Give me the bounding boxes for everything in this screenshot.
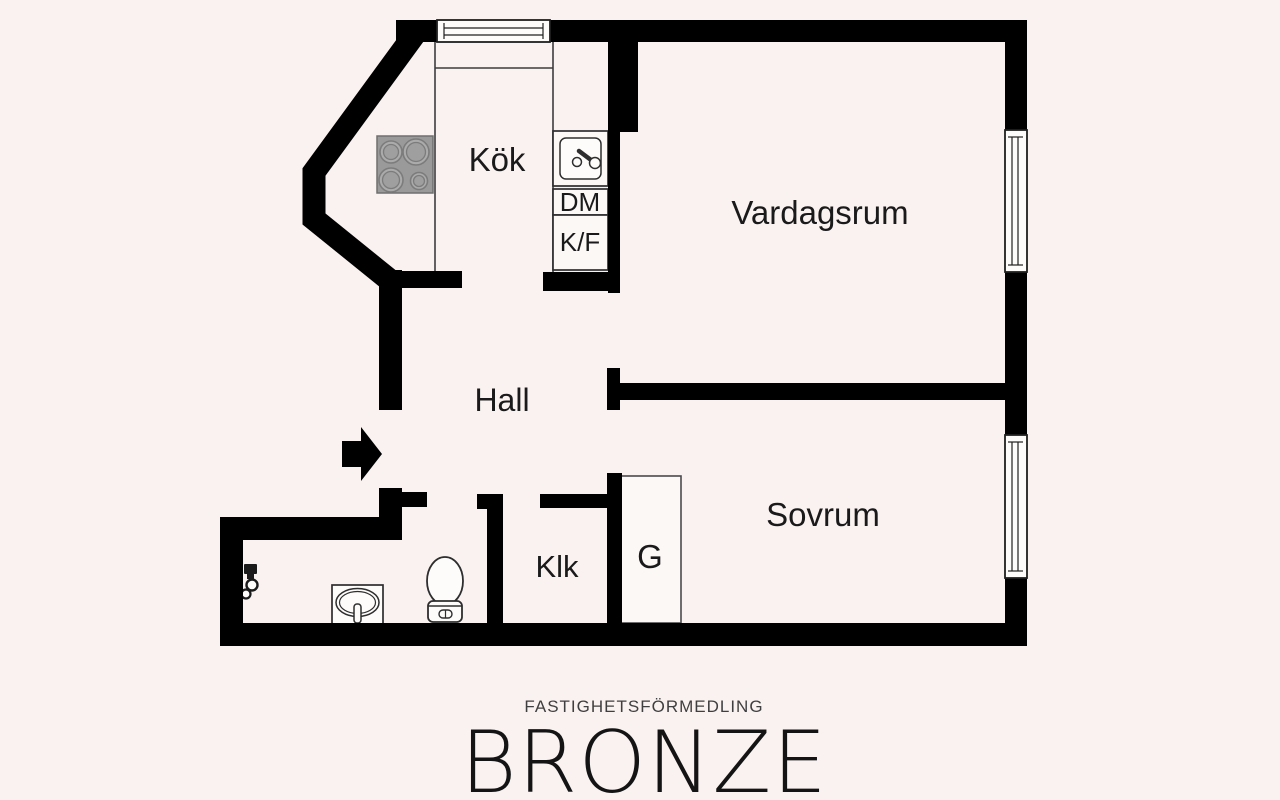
burner-ring (407, 143, 426, 162)
label-fridge-freezer: K/F (560, 227, 600, 257)
wall-living-bedroom-divider (613, 383, 1005, 400)
brand-name: BRONZE (460, 713, 827, 800)
window-living-room-icon (1005, 130, 1027, 272)
label-dishwasher: DM (560, 187, 600, 217)
floor-plan-canvas: Kök Vardagsrum Hall Sovrum Klk G DM K/F … (0, 0, 1280, 800)
window-frame (1005, 435, 1027, 578)
branding: FASTIGHETSFÖRMEDLING BRONZE (460, 697, 827, 800)
wall-bathroom-top (220, 517, 402, 540)
faucet-knob (573, 158, 582, 167)
window-bedroom-icon (1005, 435, 1027, 578)
washbasin-tap (354, 604, 361, 623)
washbasin-icon (332, 585, 383, 624)
wall-bathroom-door-stub (402, 492, 427, 507)
wall-bathroom-door-jamb (379, 488, 402, 540)
wall-kitchen-living-thin (608, 130, 620, 293)
wall-closet-door-left-cap (477, 494, 503, 509)
wall-entry (379, 270, 402, 410)
wall-right-upper (1005, 42, 1027, 130)
toilet-icon (427, 557, 463, 622)
mixer-bracket (244, 564, 257, 574)
wall-kitchen-door-left (379, 271, 462, 288)
window-frame (1005, 130, 1027, 272)
window-frame (437, 20, 550, 42)
mixer-stem (247, 574, 254, 579)
room-label-hall: Hall (474, 382, 529, 418)
burner-ring (384, 145, 399, 160)
wall-closet-door-right (540, 494, 613, 508)
window-kitchen-icon (437, 20, 550, 42)
burner-ring (414, 176, 425, 187)
room-label-kitchen: Kök (469, 141, 526, 178)
stove-icon (377, 136, 433, 193)
room-label-wardrobe: G (637, 538, 663, 575)
kitchen-sink-icon (560, 138, 601, 179)
room-label-living-room: Vardagsrum (731, 194, 908, 231)
wall-bottom (220, 623, 1027, 646)
faucet-knob (590, 158, 601, 169)
room-label-closet: Klk (535, 549, 579, 584)
burner-ring (383, 172, 400, 189)
wall-right-middle (1005, 272, 1027, 435)
wall-kitchen-living-thick (608, 20, 638, 132)
room-label-bedroom: Sovrum (766, 496, 880, 533)
toilet-bowl (427, 557, 463, 605)
floor-plan-page: Kök Vardagsrum Hall Sovrum Klk G DM K/F … (0, 0, 1280, 800)
wall-bathroom-closet (487, 507, 503, 625)
